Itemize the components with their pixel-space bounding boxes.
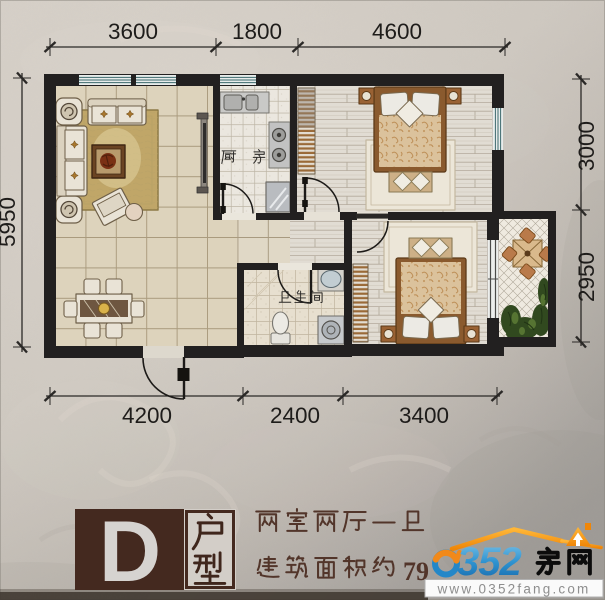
svg-text:3600: 3600 xyxy=(108,19,158,44)
svg-text:352: 352 xyxy=(457,540,521,584)
svg-text:1800: 1800 xyxy=(232,19,282,44)
svg-text:2400: 2400 xyxy=(270,403,320,428)
svg-text:3000: 3000 xyxy=(574,121,599,171)
svg-text:4200: 4200 xyxy=(122,403,172,428)
svg-text:2950: 2950 xyxy=(574,252,599,302)
svg-text:3400: 3400 xyxy=(399,403,449,428)
svg-text:5950: 5950 xyxy=(0,197,20,247)
svg-text:D: D xyxy=(99,504,161,600)
svg-text:4600: 4600 xyxy=(372,19,422,44)
